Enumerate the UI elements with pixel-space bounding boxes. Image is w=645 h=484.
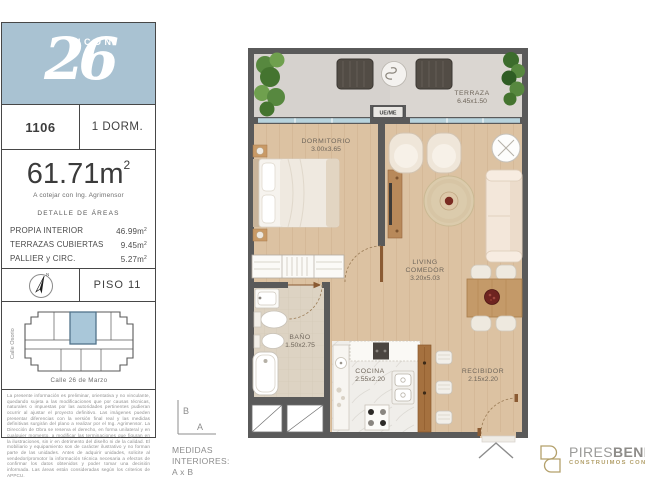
bidet xyxy=(254,334,284,349)
side-table xyxy=(492,134,520,162)
living-window xyxy=(410,118,520,123)
area-note: A cotejar con Ing. Agrimensor xyxy=(10,192,147,199)
room-dims-bano: 1.50x2.75 xyxy=(285,342,315,349)
room-label-living-1: LIVING xyxy=(412,259,437,266)
area-row: TERRAZAS CUBIERTAS 9.45m2 xyxy=(10,238,147,252)
keyplan-drawing: Calle Osorio Calle 26 de Marzo xyxy=(4,303,154,388)
toilet xyxy=(254,311,287,328)
unit-row: 1106 1 DORM. xyxy=(2,104,155,149)
measures-axis-icon: B A xyxy=(172,398,220,438)
street-bottom-label: Calle 26 de Marzo xyxy=(50,377,107,384)
area-detail-rows: PROPIA INTERIOR 46.99m2 TERRAZAS CUBIERT… xyxy=(10,224,147,266)
tv-console xyxy=(388,170,402,238)
coffee-table xyxy=(440,192,458,210)
total-area-sup: 2 xyxy=(124,158,131,172)
bathroom-sink xyxy=(255,289,279,308)
room-label-dormitorio: DORMITORIO xyxy=(301,138,350,145)
room-dims-living: 3.20x5.03 xyxy=(410,275,440,282)
brand-logo-number: 26 xyxy=(2,23,155,100)
developer-name: PIRESBENLIA CONSTRUIMOS CON EST xyxy=(569,444,645,466)
area-row-label: PROPIA INTERIOR xyxy=(10,224,83,238)
floor-row: N PISO 11 xyxy=(2,268,155,301)
brand-tagline: CONSTRUIMOS CON EST xyxy=(569,460,645,466)
compass-cell: N xyxy=(2,269,80,301)
area-row-label: TERRAZAS CUBIERTAS xyxy=(10,238,104,252)
keyplan: Calle Osorio Calle 26 de Marzo xyxy=(2,301,155,389)
room-label-bano: BAÑO xyxy=(289,332,310,341)
legal-disclaimer: La presente información es preliminar, o… xyxy=(2,389,155,436)
brand-first: PIRES xyxy=(569,444,613,460)
terraza-lounger xyxy=(416,59,452,89)
ue-me-label: UE/ME xyxy=(379,111,396,117)
bedroom-living-wall xyxy=(378,124,385,246)
unit-type: 1 DORM. xyxy=(80,105,155,149)
area-row-value: 9.45m2 xyxy=(121,238,147,252)
keyplan-unit-highlight xyxy=(70,312,96,344)
bathroom-wall xyxy=(324,282,330,403)
area-row: PALLIER y CIRC. 5.27m2 xyxy=(10,252,147,266)
room-dims-terraza: 6.45x1.50 xyxy=(457,98,487,105)
room-label-cocina: COCINA xyxy=(355,368,384,375)
armchair xyxy=(389,133,423,173)
room-label-terraza: TERRAZA xyxy=(454,90,489,97)
bar-stool xyxy=(436,351,452,364)
area-row-value: 46.99m2 xyxy=(116,224,147,238)
kitchen-sink xyxy=(392,371,414,404)
breakfast-bar xyxy=(418,345,431,432)
kitchen-upper-cabinets xyxy=(350,341,420,361)
area-row-label: PALLIER y CIRC. xyxy=(10,252,76,266)
developer-logo: PIRESBENLIA CONSTRUIMOS CON EST xyxy=(538,444,645,474)
floor-plan-drawing: UE/ME xyxy=(240,45,532,443)
kitchen-counter-left xyxy=(333,345,349,430)
bedroom-door-leaf xyxy=(380,246,383,282)
terraza-lounger xyxy=(337,59,373,89)
bedroom-window xyxy=(258,118,370,123)
total-area-value: 61.71m xyxy=(27,158,124,190)
developer-monogram-icon xyxy=(538,444,563,474)
unit-number: 1106 xyxy=(2,105,80,149)
axis-b-label: B xyxy=(183,406,189,416)
brand-logo-name: ICON xyxy=(78,37,115,47)
stove xyxy=(365,405,389,430)
area-row: PROPIA INTERIOR 46.99m2 xyxy=(10,224,147,238)
room-dims-recibidor: 2.15x2.20 xyxy=(468,376,498,383)
measures-label: MEDIDAS INTERIORES: A x B xyxy=(172,445,236,479)
room-label-living-2: COMEDOR xyxy=(406,267,445,274)
floor-plan-sheet: 26 ICON 1106 1 DORM. 61.71m2 A cotejar c… xyxy=(0,0,645,484)
axis-a-label: A xyxy=(197,422,203,432)
measures-legend: B A MEDIDAS INTERIORES: A x B xyxy=(172,398,242,479)
terraza-side-table xyxy=(382,62,407,87)
bed xyxy=(253,145,339,241)
room-dims-dormitorio: 3.00x3.65 xyxy=(311,146,341,153)
bar-stool xyxy=(436,381,452,394)
info-panel: 26 ICON 1106 1 DORM. 61.71m2 A cotejar c… xyxy=(1,22,156,438)
area-detail-title: DETALLE DE ÁREAS xyxy=(10,210,147,217)
floor-plan: UE/ME xyxy=(240,45,532,448)
bar-stool xyxy=(436,411,452,424)
total-area: 61.71m2 xyxy=(10,158,147,191)
sofa xyxy=(486,170,522,262)
area-summary: 61.71m2 A cotejar con Ing. Agrimensor DE… xyxy=(2,149,155,268)
compass-north-label: N xyxy=(46,272,49,277)
armchair xyxy=(427,133,461,173)
area-row-value: 5.27m2 xyxy=(121,252,147,266)
brand-second: BENLIA xyxy=(613,444,645,460)
compass-icon: N xyxy=(26,271,56,299)
street-left-label: Calle Osorio xyxy=(10,328,16,359)
floor-label: PISO 11 xyxy=(80,269,155,301)
chevron-up-icon xyxy=(477,440,515,465)
room-dims-cocina: 2.55x2.20 xyxy=(355,376,385,383)
bathtub xyxy=(253,352,278,395)
wardrobe xyxy=(252,255,344,278)
room-label-recibidor: RECIBIDOR xyxy=(462,368,504,375)
brand-logo: 26 ICON xyxy=(2,23,155,104)
